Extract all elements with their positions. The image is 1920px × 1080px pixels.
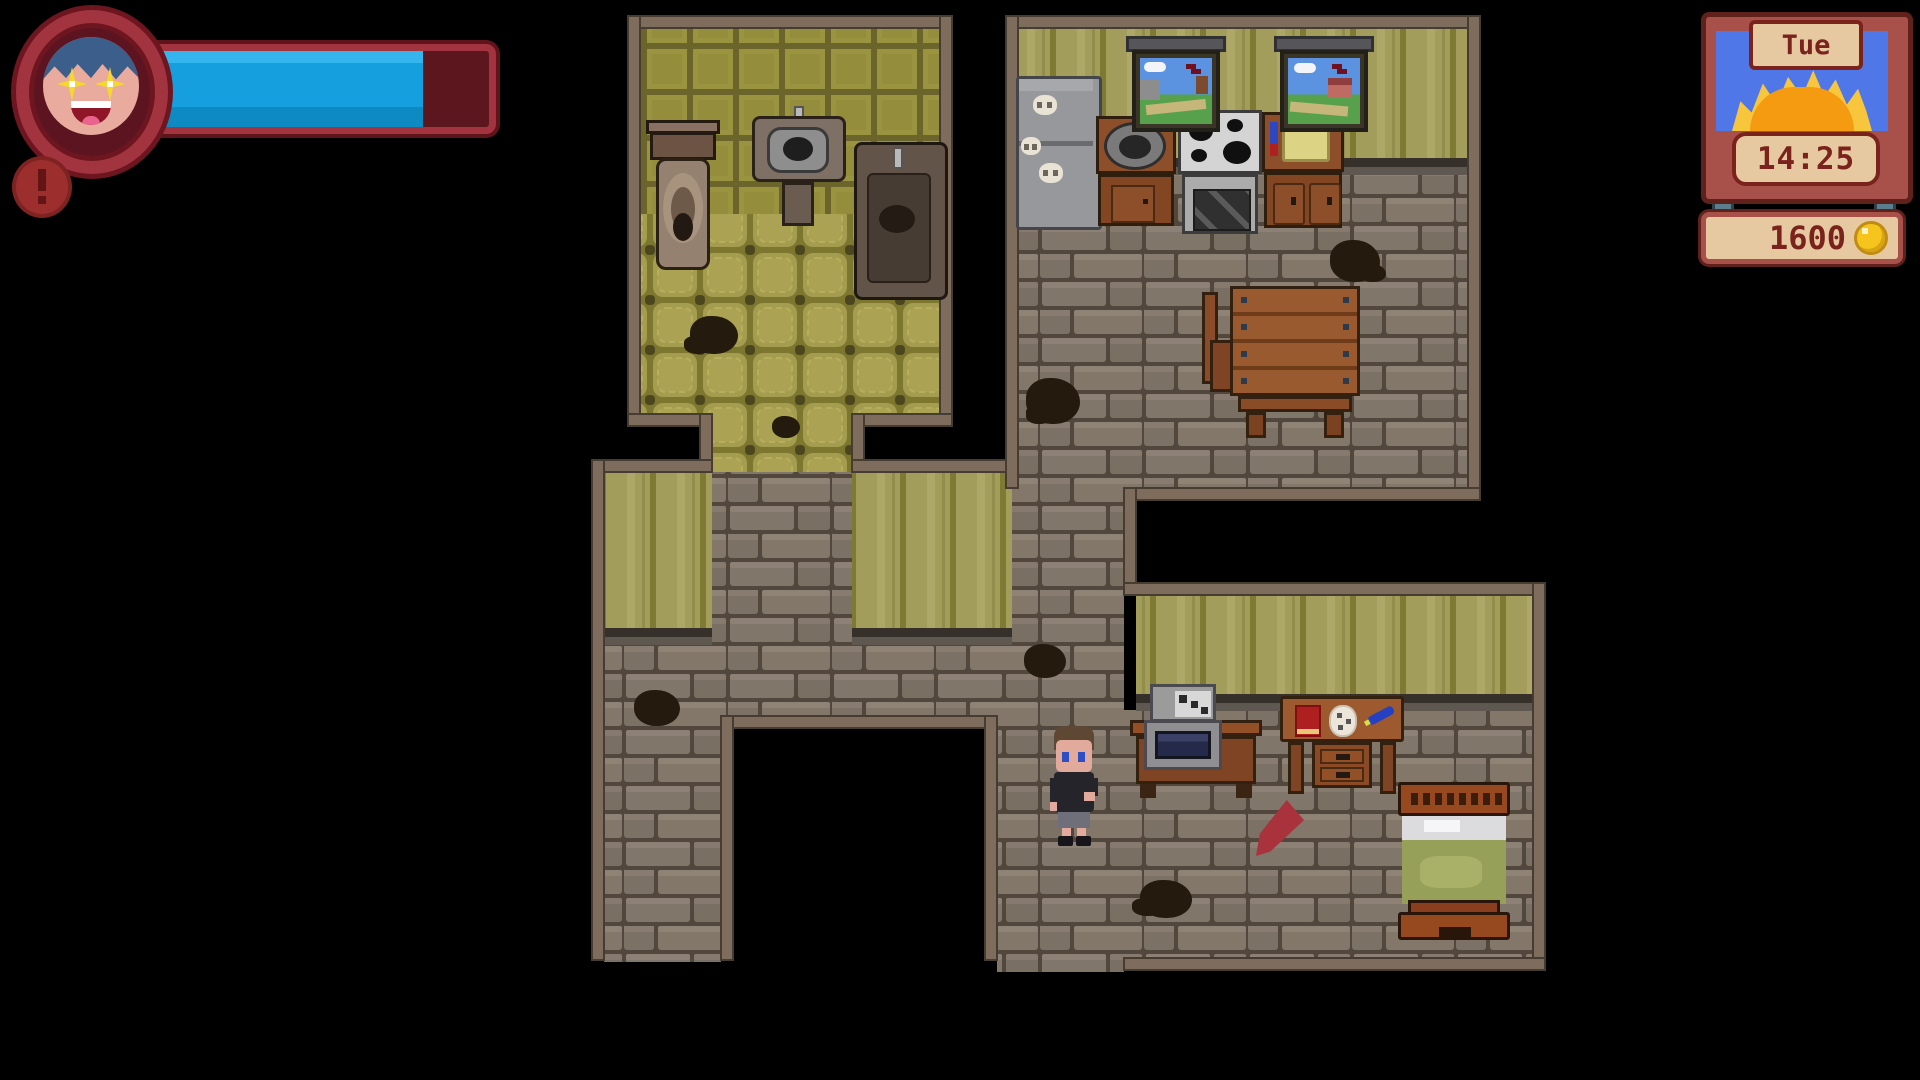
exclamation-icon[interactable] [12,156,72,218]
player-shoe [1058,836,1073,846]
dirt-spot [1330,240,1380,282]
dirt-spot [690,316,738,354]
avatar-face [43,37,139,135]
game-map [0,0,1920,1080]
headboard [1398,782,1510,816]
player-shoe [1076,836,1091,846]
day-text: Tue [1782,30,1831,61]
oven-door [1182,174,1258,234]
tv-label [1175,691,1211,717]
player-avatar[interactable] [16,10,168,174]
time-text: 14:25 [1757,141,1855,177]
money-display: 1600 [1701,212,1903,264]
dirt-spot [634,690,680,726]
corridor-floor [1012,472,1124,720]
cloud [1294,63,1316,73]
blue-brush [1367,705,1396,726]
dirt-spot [772,416,800,438]
table-skirt [1238,396,1352,412]
hallway-floor-left-column [604,716,721,962]
time-display: 14:25 [1732,132,1880,186]
table-leg [1246,412,1266,438]
desk-drawers [1312,742,1372,788]
kitchen-window [1280,36,1368,132]
tree [1196,76,1208,94]
table-top [1230,286,1360,396]
path [1146,99,1207,115]
fridge[interactable] [1016,76,1102,230]
tv-screen [1155,731,1211,759]
coin-icon [1854,221,1888,255]
player-face [1056,740,1092,772]
energy-bar [118,44,496,134]
toilet[interactable] [646,120,720,275]
hallway-wall-right [852,472,1012,628]
bathroom-sink[interactable] [752,106,846,226]
bed[interactable] [1398,782,1510,940]
desk[interactable] [1280,696,1404,800]
player-shorts [1058,812,1090,828]
bird-icon [1332,64,1342,69]
footboard-base [1398,912,1510,940]
house [1328,78,1352,98]
blanket [1402,840,1506,904]
player-character[interactable] [1050,726,1098,846]
baseboard [604,637,712,645]
dirt-spot [1026,378,1080,424]
day-label: Tue [1749,20,1863,70]
baseboard [604,628,712,637]
building [1140,80,1160,100]
avatar-mouth [71,101,111,125]
dirt-spot [1140,880,1192,918]
counter-with-pot[interactable] [1096,116,1176,226]
avatar-hair [43,37,139,96]
toilet-bowl [656,158,710,270]
skull-magnet [1021,137,1041,155]
bathtub[interactable] [854,142,948,300]
knife-icon [1270,144,1278,156]
skull-magnet [1033,95,1057,115]
sink-top [752,116,846,182]
game-screen: Tue 14:25 1600 [0,0,1920,1080]
toilet-tank [650,132,716,160]
bird-icon [1186,64,1196,69]
dirt-spot [1024,644,1066,678]
knife-icon [1270,122,1278,144]
sink-pedestal [782,182,814,226]
paper [1329,705,1357,737]
pillow [1402,816,1506,840]
bedroom-exit-floor [997,958,1124,972]
baseboard [852,628,1012,637]
money-amount: 1600 [1769,219,1846,257]
faucet-icon [893,147,903,169]
bedroom-wall [1136,595,1533,694]
skull-magnet [1039,163,1063,183]
dining-table[interactable] [1202,282,1360,440]
red-book [1295,705,1321,737]
tv[interactable] [1144,684,1222,770]
kitchen-window [1132,36,1220,132]
path [1290,101,1349,116]
table-leg [1324,412,1344,438]
hallway-wall-left [604,472,712,628]
cloud [1144,62,1166,72]
baseboard [852,637,1012,645]
energy-bar-fill [125,51,423,127]
